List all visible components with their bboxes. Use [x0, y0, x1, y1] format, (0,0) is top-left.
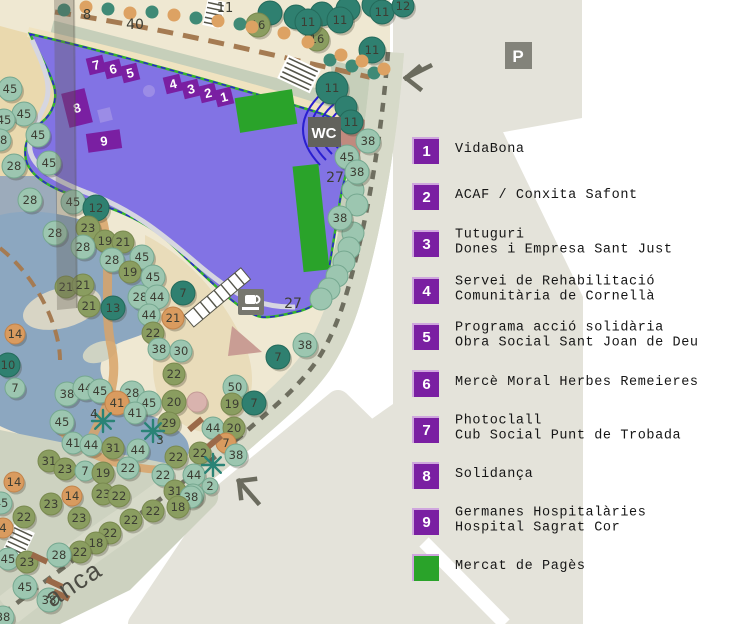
svg-text:44: 44	[150, 290, 165, 304]
map-canvas: 765432189 161611111112111111384538383875…	[0, 0, 740, 624]
area-label: 3	[156, 433, 164, 447]
small-tree	[302, 36, 315, 49]
area-label: 27	[326, 170, 344, 186]
svg-text:28: 28	[52, 548, 67, 562]
svg-text:29: 29	[162, 416, 177, 430]
svg-text:7: 7	[250, 396, 257, 410]
svg-text:12: 12	[89, 201, 104, 215]
svg-text:41: 41	[66, 436, 81, 450]
svg-text:20: 20	[167, 395, 182, 409]
svg-text:21: 21	[116, 235, 131, 249]
svg-text:45: 45	[0, 113, 11, 127]
svg-text:23: 23	[72, 511, 87, 525]
svg-text:28: 28	[23, 193, 38, 207]
svg-text:P: P	[512, 47, 523, 66]
svg-text:45: 45	[135, 250, 150, 264]
small-tree	[278, 27, 291, 40]
svg-text:28: 28	[105, 253, 120, 267]
svg-text:22: 22	[146, 504, 161, 518]
svg-text:7: 7	[179, 286, 186, 300]
stand-dot	[143, 85, 155, 97]
svg-text:45: 45	[93, 384, 108, 398]
svg-text:2: 2	[206, 479, 213, 493]
svg-text:38: 38	[298, 338, 313, 352]
svg-text:44: 44	[131, 443, 146, 457]
area-label: 40	[126, 17, 144, 33]
area-label: 11	[217, 1, 234, 16]
svg-text:38: 38	[0, 133, 7, 147]
svg-text:11: 11	[375, 5, 390, 19]
svg-text:WC: WC	[312, 125, 337, 142]
small-tree	[234, 18, 247, 31]
svg-text:11: 11	[301, 15, 316, 29]
svg-text:45: 45	[0, 496, 8, 510]
svg-text:23: 23	[81, 221, 96, 235]
svg-text:38: 38	[0, 610, 10, 624]
small-tree	[190, 12, 203, 25]
svg-text:45: 45	[146, 270, 161, 284]
svg-text:18: 18	[171, 500, 186, 514]
svg-text:44: 44	[84, 438, 99, 452]
svg-text:22: 22	[156, 468, 171, 482]
small-tree	[335, 49, 348, 62]
park-map: 765432189 161611111112111111384538383875…	[0, 0, 740, 624]
area-label: 8	[83, 8, 91, 23]
svg-text:20: 20	[227, 421, 242, 435]
svg-text:22: 22	[124, 513, 139, 527]
svg-text:7: 7	[81, 464, 88, 478]
svg-text:19: 19	[98, 234, 113, 248]
svg-text:38: 38	[361, 134, 376, 148]
svg-text:38: 38	[60, 387, 75, 401]
svg-text:45: 45	[1, 552, 16, 566]
svg-text:44: 44	[142, 308, 157, 322]
small-tree	[102, 3, 115, 16]
svg-text:38: 38	[152, 342, 167, 356]
parking-icon: P	[505, 42, 532, 69]
svg-text:45: 45	[42, 156, 57, 170]
svg-text:22: 22	[167, 367, 182, 381]
svg-text:18: 18	[89, 536, 104, 550]
small-tree	[246, 21, 259, 34]
svg-text:31: 31	[106, 441, 121, 455]
svg-text:44: 44	[206, 421, 221, 435]
palm-tree	[202, 454, 224, 476]
svg-text:21: 21	[166, 311, 181, 325]
svg-text:7: 7	[11, 381, 18, 395]
svg-text:21: 21	[82, 299, 97, 313]
svg-text:28: 28	[76, 240, 91, 254]
svg-text:7: 7	[274, 350, 281, 364]
svg-text:14: 14	[65, 489, 80, 503]
svg-text:14: 14	[8, 327, 23, 341]
svg-text:45: 45	[18, 580, 33, 594]
svg-text:41: 41	[110, 396, 125, 410]
svg-text:22: 22	[121, 461, 136, 475]
svg-text:22: 22	[112, 489, 127, 503]
svg-text:12: 12	[396, 0, 411, 13]
svg-text:11: 11	[344, 115, 359, 129]
small-tree	[378, 63, 391, 76]
svg-text:23: 23	[58, 462, 73, 476]
small-tree	[168, 9, 181, 22]
svg-text:21: 21	[76, 278, 91, 292]
hedge-shrub	[310, 288, 332, 310]
svg-text:11: 11	[325, 81, 340, 95]
small-tree	[146, 6, 159, 19]
svg-text:22: 22	[17, 510, 32, 524]
svg-text:38: 38	[229, 448, 244, 462]
wc-icon: WC	[308, 117, 341, 147]
svg-text:13: 13	[106, 301, 121, 315]
svg-text:50: 50	[228, 380, 243, 394]
svg-text:41: 41	[128, 406, 143, 420]
area-label: 27	[284, 296, 302, 312]
svg-text:30: 30	[174, 344, 189, 358]
svg-text:4: 4	[0, 521, 7, 535]
svg-text:11: 11	[333, 13, 348, 27]
svg-text:11: 11	[365, 43, 380, 57]
svg-text:23: 23	[44, 497, 59, 511]
svg-text:45: 45	[3, 82, 18, 96]
svg-text:38: 38	[350, 165, 365, 179]
cafe-icon	[238, 289, 264, 315]
svg-text:45: 45	[31, 128, 46, 142]
svg-text:38: 38	[333, 211, 348, 225]
svg-text:22: 22	[169, 450, 184, 464]
svg-text:19: 19	[123, 265, 138, 279]
svg-text:10: 10	[1, 358, 16, 372]
svg-text:45: 45	[17, 107, 32, 121]
small-tree	[356, 55, 369, 68]
svg-text:19: 19	[225, 397, 240, 411]
area-label: 4	[90, 407, 98, 421]
svg-text:44: 44	[187, 468, 202, 482]
svg-text:14: 14	[7, 475, 22, 489]
small-tree	[212, 15, 225, 28]
svg-text:28: 28	[7, 159, 22, 173]
svg-text:45: 45	[55, 415, 70, 429]
svg-text:19: 19	[96, 466, 111, 480]
